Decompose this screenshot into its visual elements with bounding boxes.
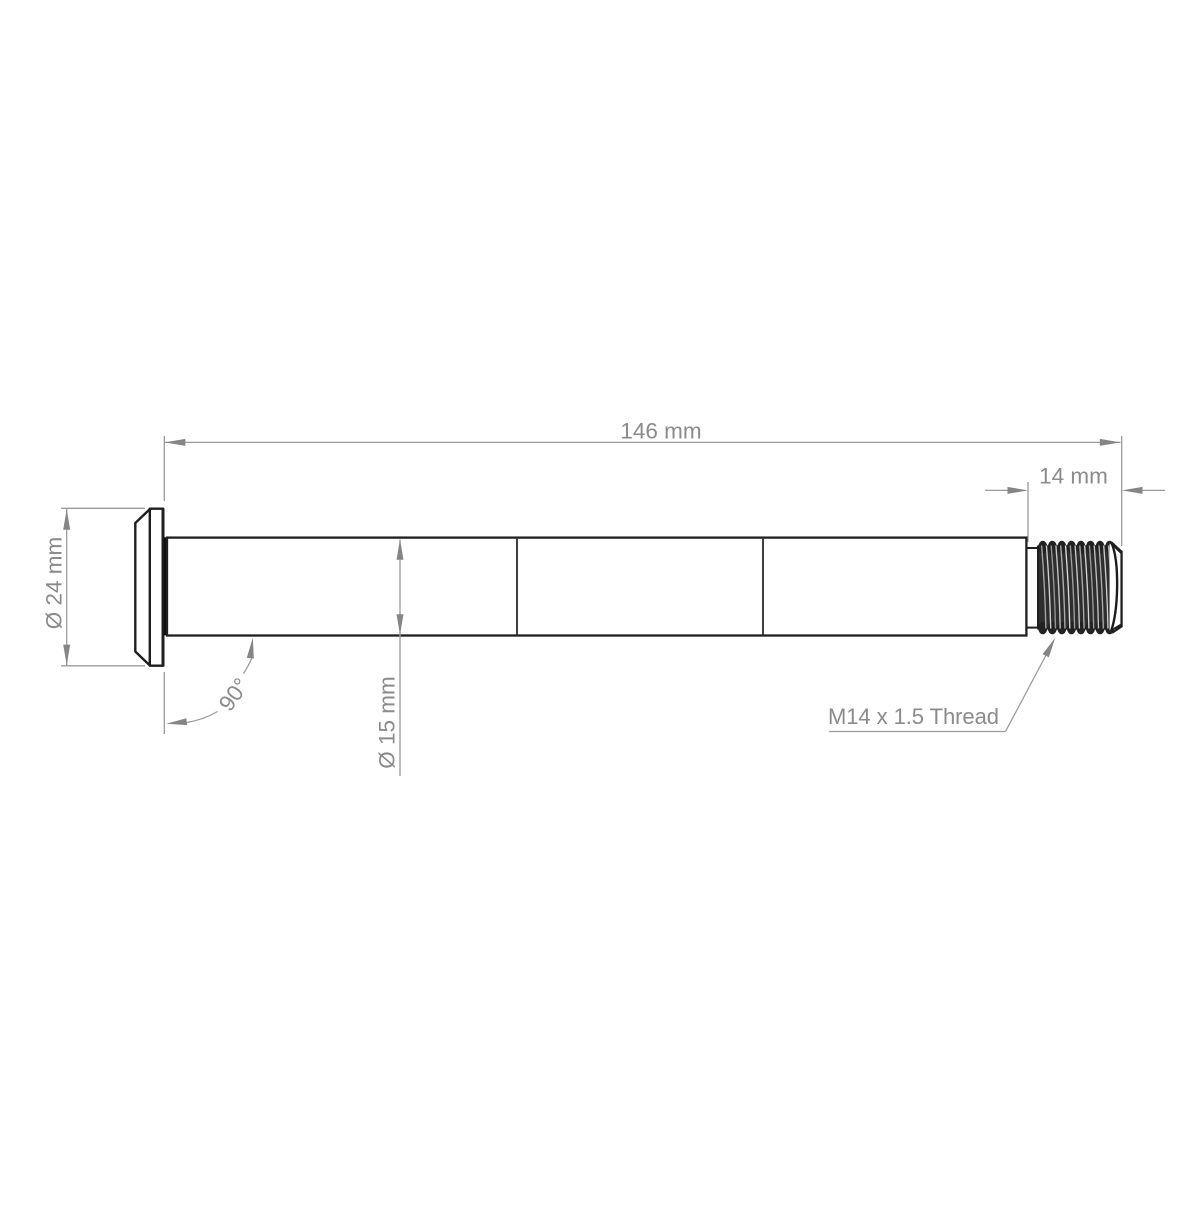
svg-text:146 mm: 146 mm xyxy=(620,419,701,444)
svg-text:M14 x 1.5 Thread: M14 x 1.5 Thread xyxy=(828,704,999,729)
svg-text:Ø 24 mm: Ø 24 mm xyxy=(42,537,67,630)
svg-text:Ø 15 mm: Ø 15 mm xyxy=(375,676,400,769)
svg-text:14 mm: 14 mm xyxy=(1039,464,1108,489)
